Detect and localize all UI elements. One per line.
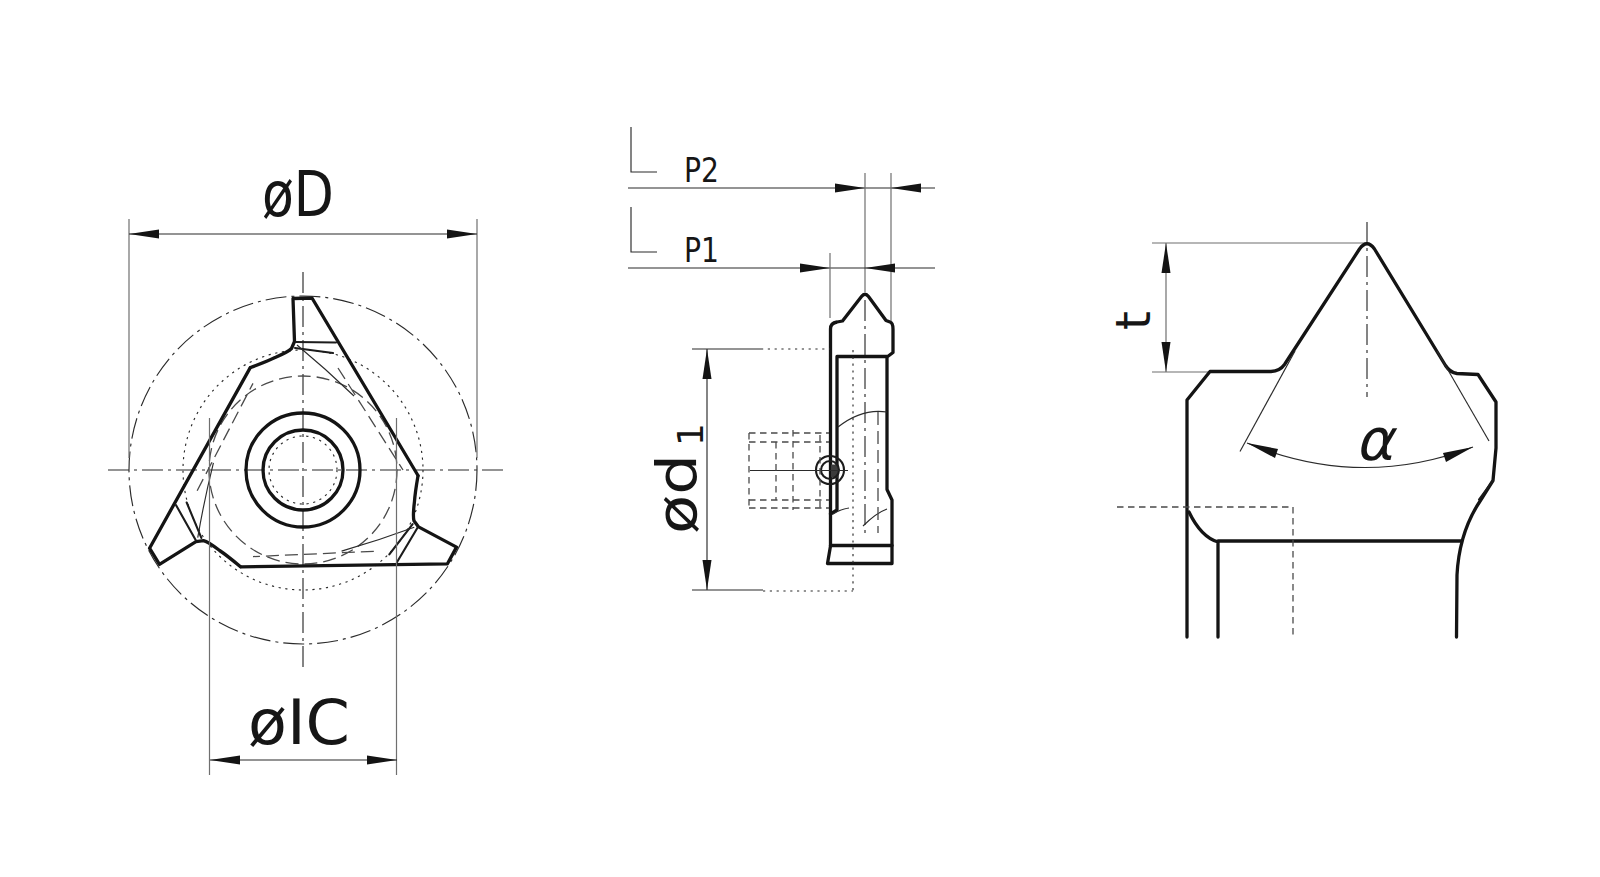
- label-outer-diameter: øD: [262, 158, 334, 231]
- front-centerlines: [108, 272, 505, 668]
- label-inscribed-circle: øIC: [248, 686, 350, 759]
- label-p2: P2: [684, 150, 719, 190]
- tooth-outline: [1187, 244, 1496, 637]
- label-tooth-height: t: [1105, 311, 1161, 330]
- label-d1-subscript: 1: [670, 423, 711, 446]
- dim-tooth-height: t: [1105, 243, 1367, 372]
- technical-drawing: øD øIC P2 P1: [0, 0, 1600, 877]
- dim-p1: P1: [628, 207, 935, 318]
- dim-p2: P2: [628, 127, 935, 321]
- side-view: P2 P1: [628, 127, 935, 591]
- insert-outline: [97, 298, 479, 656]
- label-p1: P1: [684, 230, 719, 270]
- label-flank-angle: α: [1355, 406, 1398, 474]
- side-body: [828, 294, 894, 591]
- detail-view: t α: [1105, 222, 1496, 637]
- drawing-canvas: øD øIC P2 P1: [0, 0, 1600, 877]
- label-d1-base: ød: [644, 454, 709, 534]
- front-view: øD øIC: [97, 158, 505, 775]
- side-hole: [750, 456, 848, 484]
- detail-dotted-reference: [1117, 507, 1293, 635]
